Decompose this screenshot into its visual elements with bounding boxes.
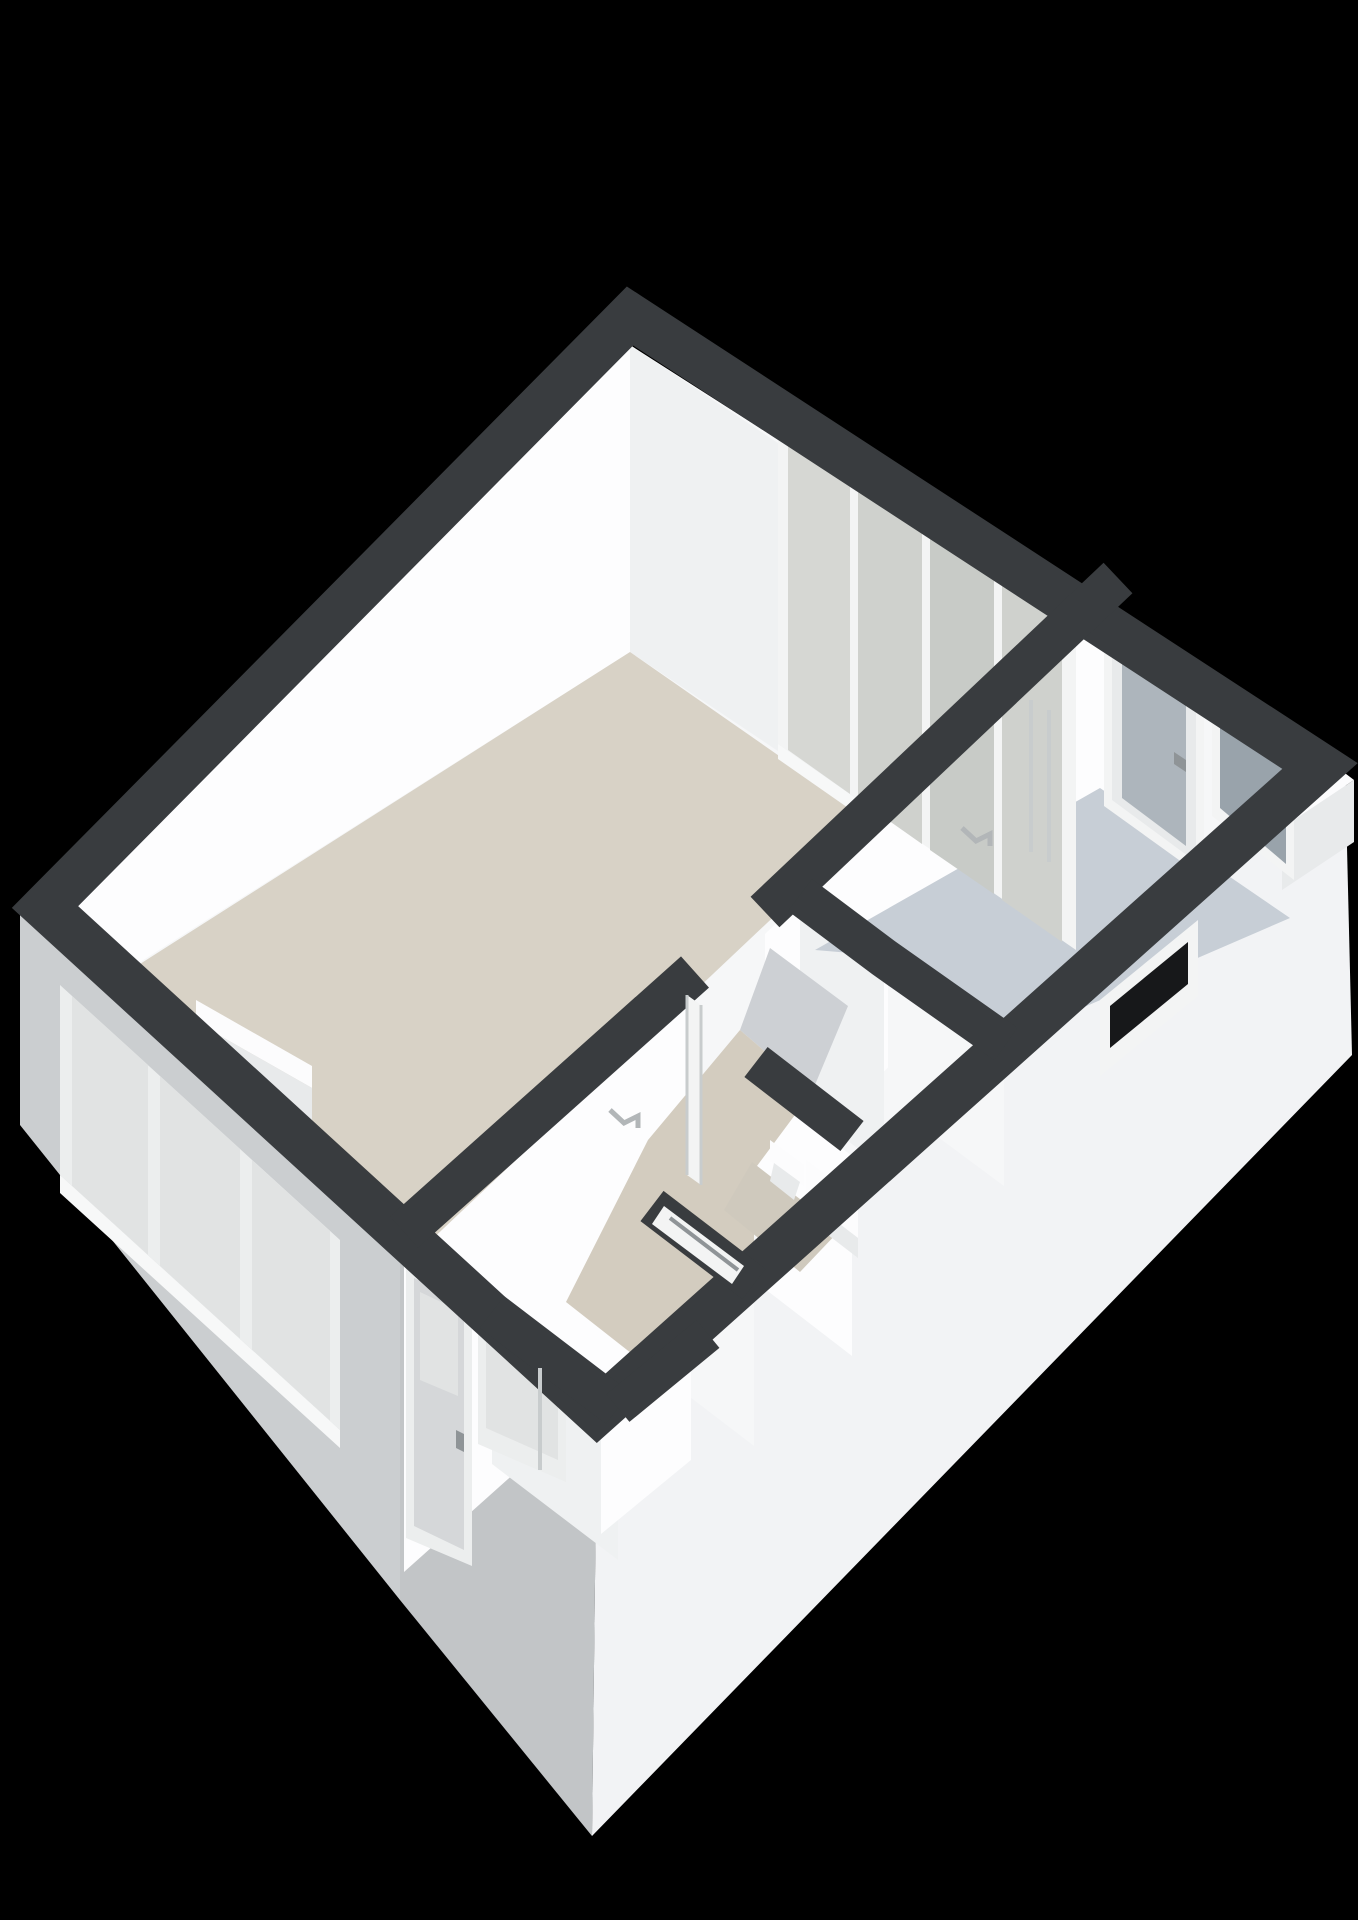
floorplan-svg	[0, 0, 1358, 1920]
window-pane-1	[788, 434, 850, 794]
sliding-door-leaf-living	[687, 995, 701, 1185]
floorplan-3d-render	[0, 0, 1358, 1920]
